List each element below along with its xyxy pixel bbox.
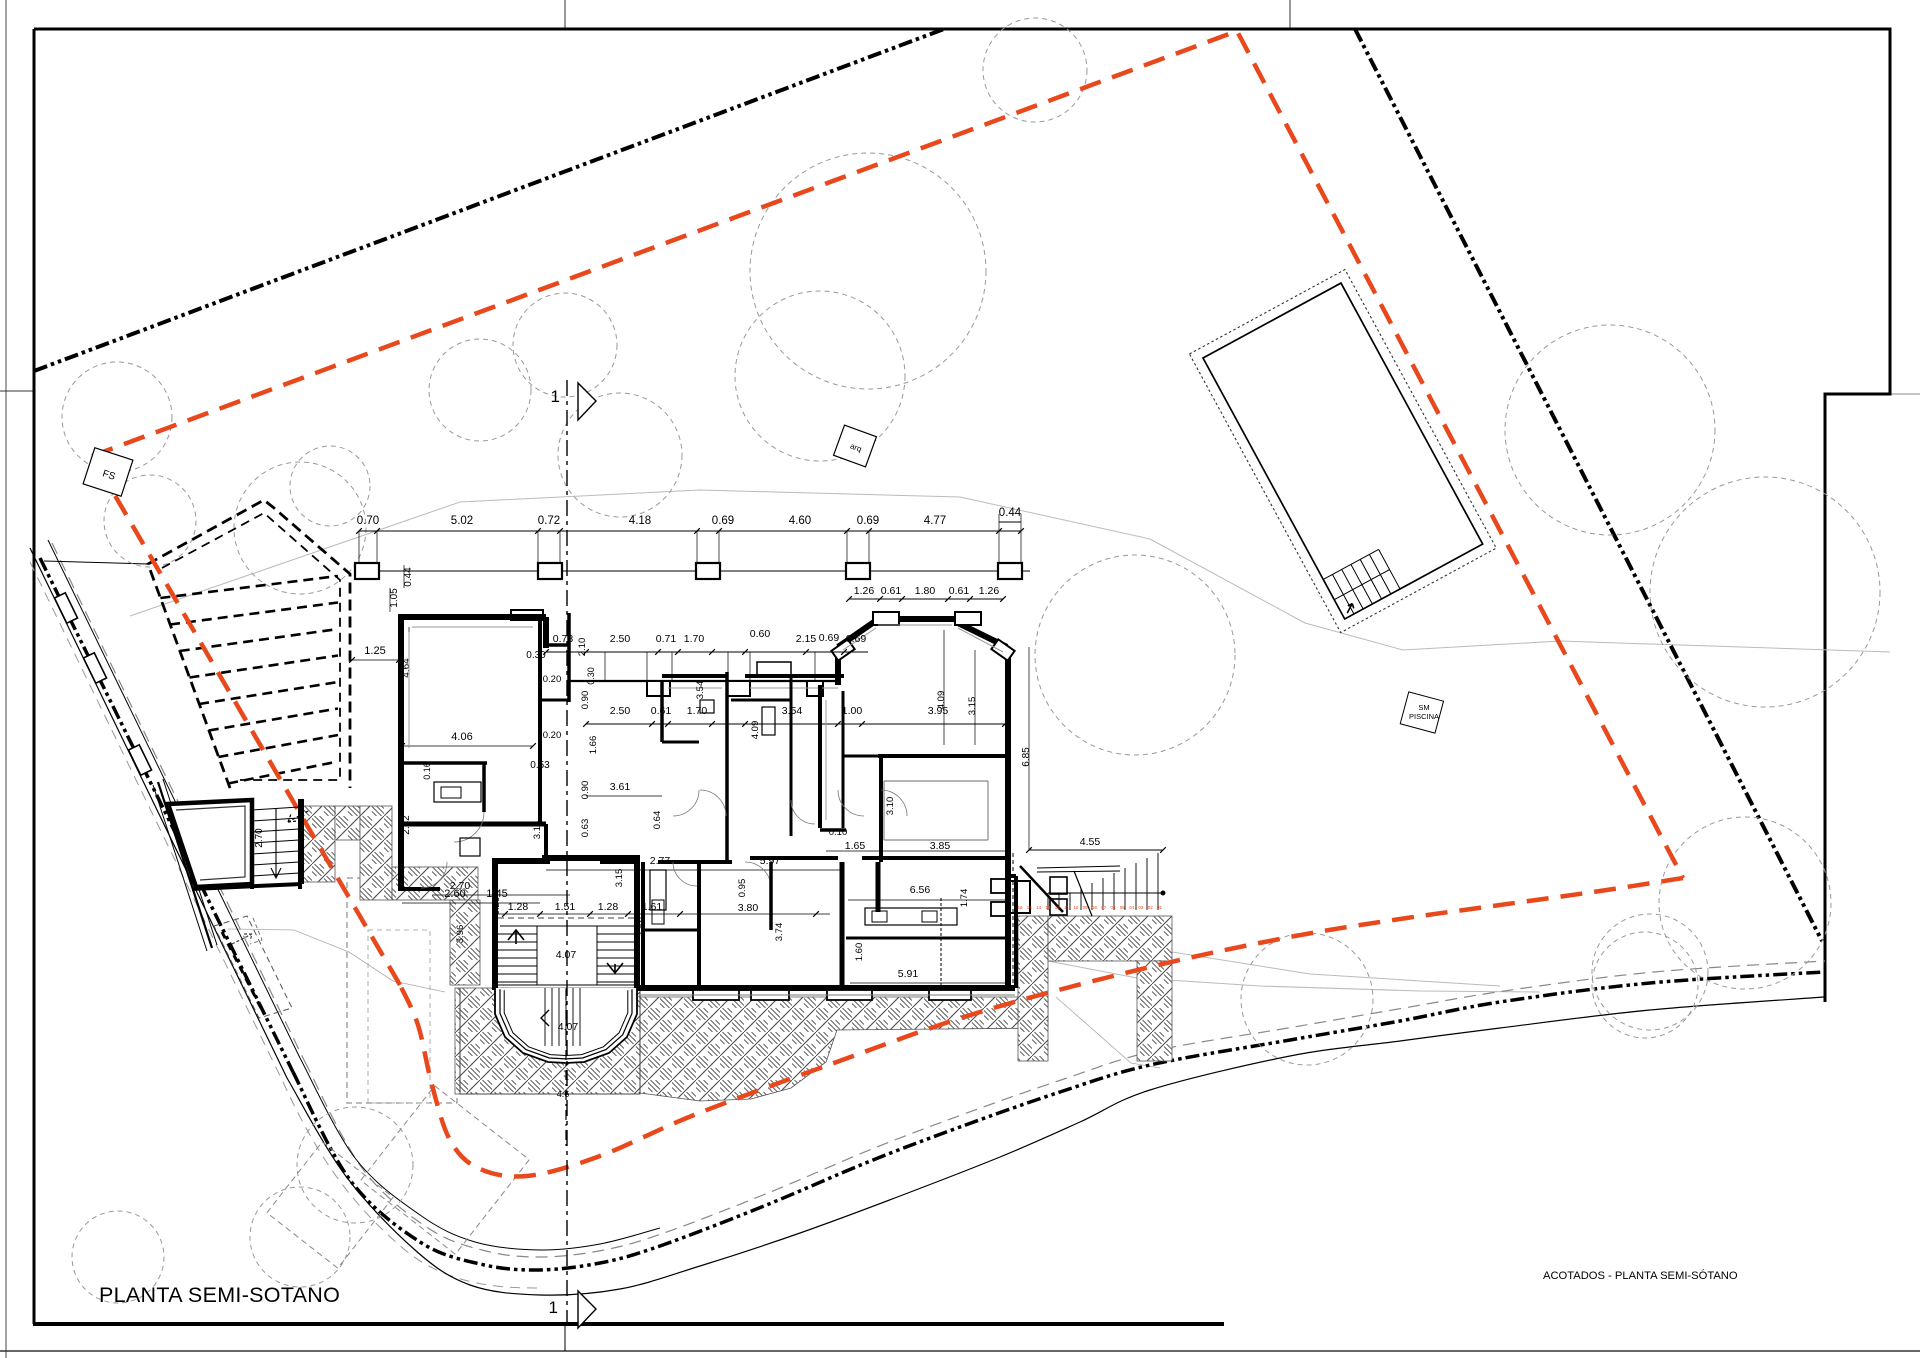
svg-text:1.80: 1.80 <box>915 585 936 597</box>
svg-text:6.85: 6.85 <box>1021 747 1032 767</box>
svg-text:0.61: 0.61 <box>651 705 672 717</box>
svg-text:1: 1 <box>551 387 560 406</box>
svg-text:1.60: 1.60 <box>854 943 865 962</box>
svg-text:4.09: 4.09 <box>936 691 947 710</box>
svg-text:0.64: 0.64 <box>652 811 663 830</box>
svg-text:1.00: 1.00 <box>842 705 863 717</box>
svg-text:0.20: 0.20 <box>543 674 562 685</box>
svg-text:0.61: 0.61 <box>949 585 970 597</box>
svg-text:0.69: 0.69 <box>819 632 840 644</box>
svg-text:PISCINA: PISCINA <box>1409 712 1439 721</box>
svg-text:2.70: 2.70 <box>254 828 265 848</box>
svg-text:0.69: 0.69 <box>857 515 879 527</box>
svg-text:0.63: 0.63 <box>580 819 591 838</box>
svg-text:0.53: 0.53 <box>530 760 550 771</box>
svg-text:13: 13 <box>1045 905 1051 910</box>
svg-text:1.65: 1.65 <box>845 840 866 852</box>
svg-text:0.70: 0.70 <box>357 515 379 527</box>
svg-text:0.71: 0.71 <box>656 633 677 645</box>
svg-text:1.26: 1.26 <box>854 585 875 597</box>
svg-text:3.15: 3.15 <box>614 869 625 888</box>
svg-text:0.30: 0.30 <box>586 667 596 685</box>
svg-text:03: 03 <box>1138 905 1144 910</box>
svg-text:5.91: 5.91 <box>898 968 919 980</box>
svg-text:3.61: 3.61 <box>610 781 631 793</box>
svg-text:SM: SM <box>1418 703 1429 712</box>
svg-text:4.55: 4.55 <box>1080 836 1101 848</box>
svg-text:3.10: 3.10 <box>885 797 896 816</box>
svg-text:0.73: 0.73 <box>553 633 574 645</box>
svg-text:0.10: 0.10 <box>829 827 848 838</box>
svg-text:6.56: 6.56 <box>910 884 931 896</box>
svg-text:1.66: 1.66 <box>588 736 599 755</box>
svg-text:0.44: 0.44 <box>999 507 1022 519</box>
svg-text:2.10: 2.10 <box>577 638 588 657</box>
svg-text:3.54: 3.54 <box>695 681 706 700</box>
svg-text:0.60: 0.60 <box>750 628 771 640</box>
svg-text:11: 11 <box>1064 905 1069 910</box>
svg-text:06: 06 <box>1110 905 1116 910</box>
svg-text:09: 09 <box>1083 905 1089 910</box>
svg-text:1.28: 1.28 <box>508 901 529 913</box>
svg-text:0.61: 0.61 <box>881 585 902 597</box>
svg-text:0.90: 0.90 <box>580 691 591 710</box>
svg-text:ACOTADOS - PLANTA SEMI-SÓTANO: ACOTADOS - PLANTA SEMI-SÓTANO <box>1543 1269 1738 1282</box>
svg-text:1: 1 <box>549 1298 558 1317</box>
svg-text:PLANTA SEMI-SOTANO: PLANTA SEMI-SOTANO <box>99 1283 340 1307</box>
svg-text:5.02: 5.02 <box>451 515 473 527</box>
svg-text:0.69: 0.69 <box>712 515 734 527</box>
svg-text:15: 15 <box>1027 905 1033 910</box>
svg-text:3.80: 3.80 <box>738 902 759 914</box>
svg-text:14: 14 <box>1036 905 1042 910</box>
svg-text:1.28: 1.28 <box>598 901 619 913</box>
svg-text:0.16: 0.16 <box>422 762 432 780</box>
svg-text:0.20: 0.20 <box>543 730 562 741</box>
svg-text:16: 16 <box>1017 905 1023 910</box>
svg-text:3.92: 3.92 <box>635 919 646 938</box>
svg-text:0.25: 0.25 <box>491 897 502 916</box>
svg-text:2.50: 2.50 <box>610 633 631 645</box>
svg-text:4.06: 4.06 <box>451 731 472 743</box>
svg-text:10: 10 <box>1073 905 1079 910</box>
svg-text:4.77: 4.77 <box>924 515 946 527</box>
svg-text:1.05: 1.05 <box>389 588 400 608</box>
svg-text:07: 07 <box>1101 905 1107 910</box>
svg-text:0.30: 0.30 <box>526 650 546 661</box>
svg-text:05: 05 <box>1120 905 1126 910</box>
svg-text:2.70: 2.70 <box>450 880 471 892</box>
svg-text:2.50: 2.50 <box>610 705 631 717</box>
svg-text:04: 04 <box>1129 905 1135 910</box>
svg-text:4.18: 4.18 <box>629 515 651 527</box>
svg-text:12: 12 <box>1055 905 1061 910</box>
svg-text:08: 08 <box>1092 905 1098 910</box>
svg-text:0.44: 0.44 <box>403 567 414 587</box>
svg-text:3.85: 3.85 <box>930 840 951 852</box>
svg-text:3.96: 3.96 <box>455 925 466 944</box>
svg-text:1.26: 1.26 <box>979 585 1000 597</box>
svg-text:2.77: 2.77 <box>650 855 671 867</box>
svg-text:1.61: 1.61 <box>642 901 663 913</box>
svg-text:3.54: 3.54 <box>782 705 803 717</box>
svg-text:3.15: 3.15 <box>532 821 543 840</box>
svg-text:02: 02 <box>1148 905 1154 910</box>
svg-text:4.07: 4.07 <box>556 949 577 961</box>
svg-text:0.72: 0.72 <box>538 515 560 527</box>
svg-text:0.95: 0.95 <box>737 879 748 898</box>
svg-text:3.15: 3.15 <box>967 697 978 716</box>
svg-text:01: 01 <box>1157 905 1163 910</box>
svg-text:1.70: 1.70 <box>684 633 705 645</box>
svg-text:0.90: 0.90 <box>580 781 591 800</box>
svg-text:1.25: 1.25 <box>364 645 385 657</box>
svg-text:0.69: 0.69 <box>846 633 867 645</box>
svg-text:4.07: 4.07 <box>558 1021 579 1033</box>
svg-text:2.15: 2.15 <box>796 633 817 645</box>
svg-text:4.09: 4.09 <box>750 721 761 740</box>
svg-text:4.60: 4.60 <box>789 515 811 527</box>
svg-text:1.70: 1.70 <box>687 705 708 717</box>
svg-text:1.74: 1.74 <box>959 889 970 908</box>
svg-text:1.51: 1.51 <box>555 901 576 913</box>
svg-text:3.74: 3.74 <box>774 923 785 942</box>
